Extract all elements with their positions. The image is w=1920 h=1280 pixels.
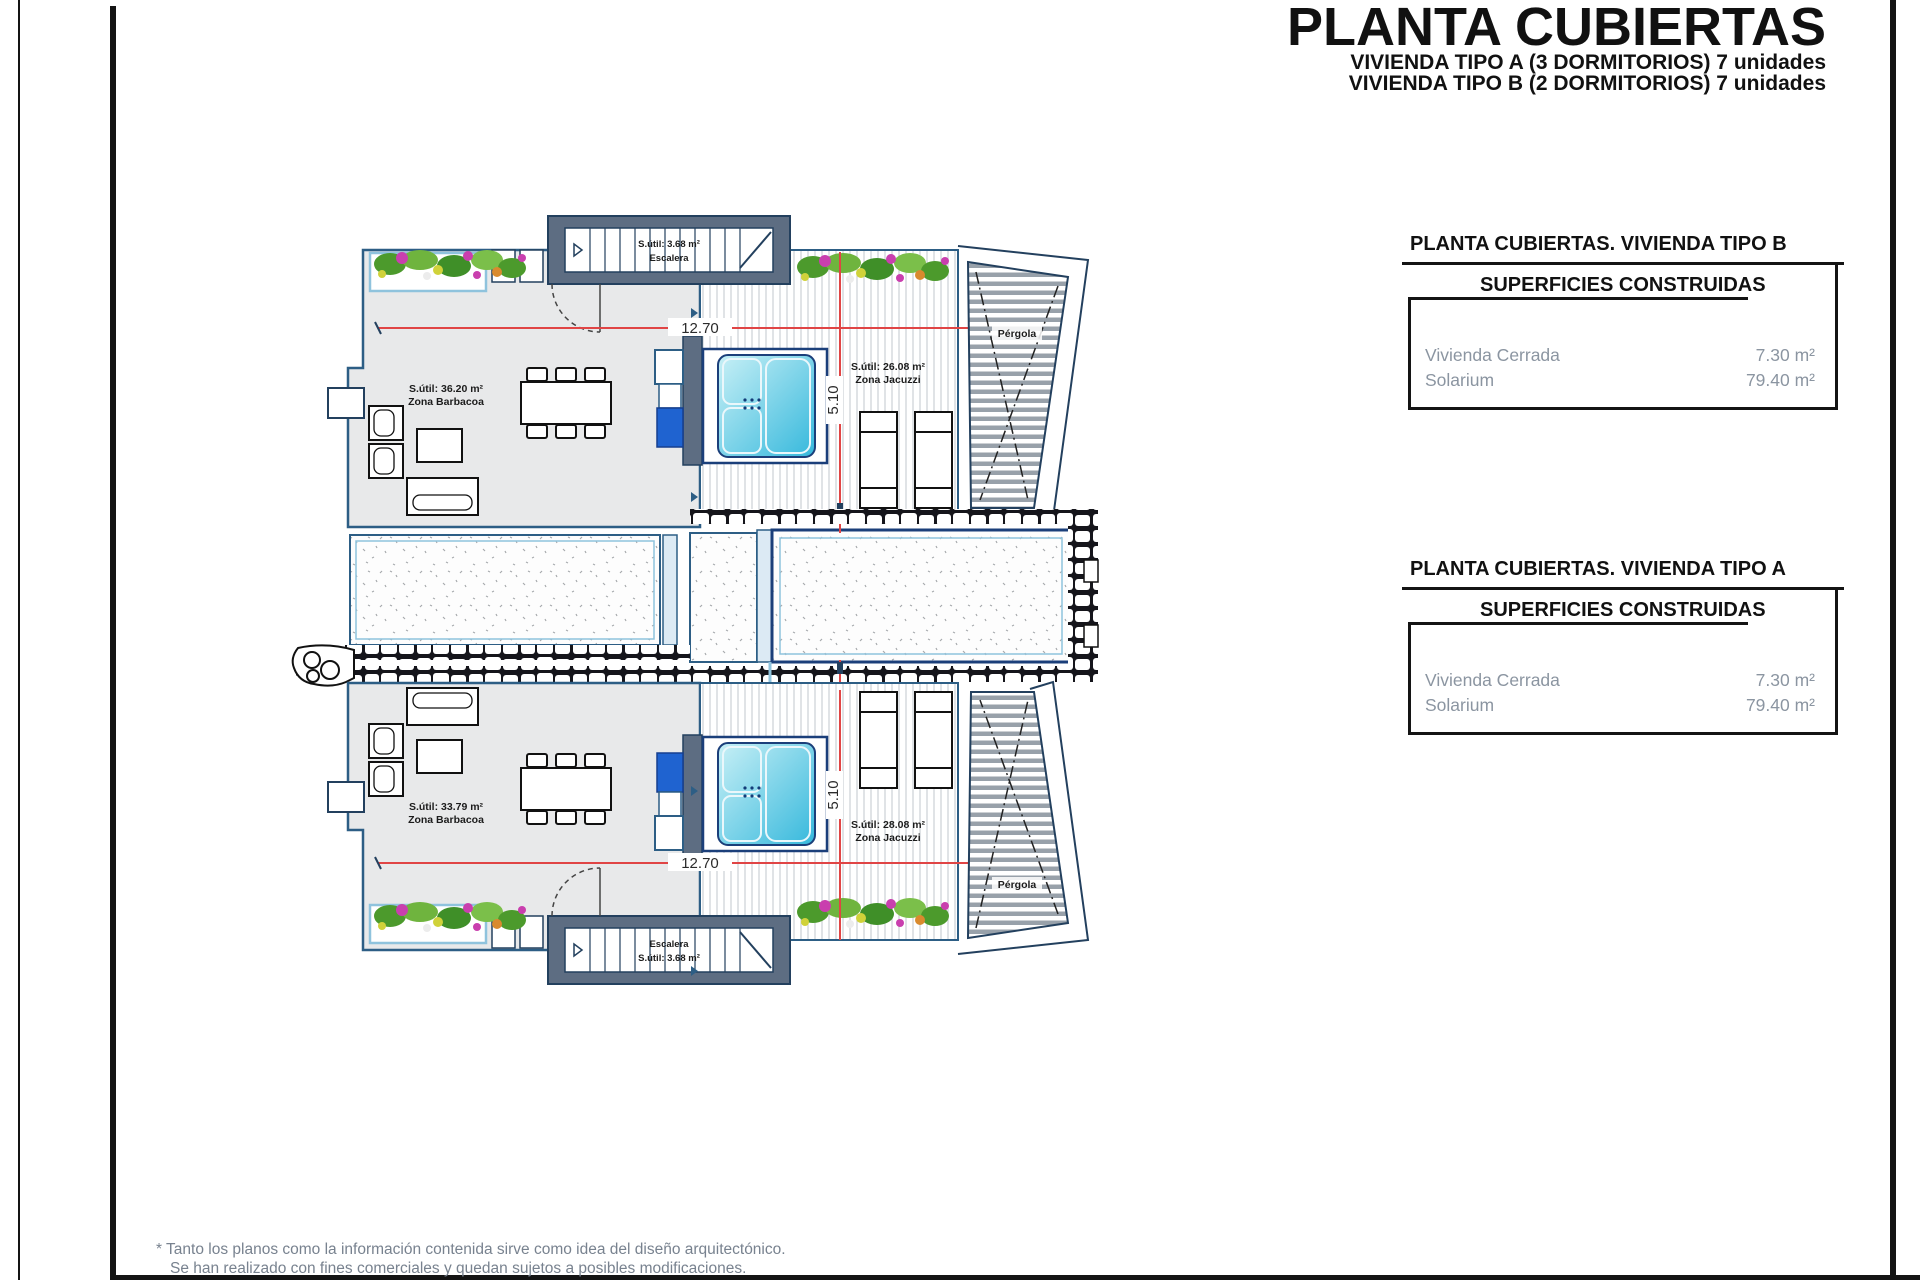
row-label: Vivienda Cerrada bbox=[1425, 670, 1560, 691]
dining-set bbox=[521, 754, 611, 824]
pergola-top: Pérgola bbox=[958, 246, 1088, 518]
surfaces-table-tipo-b: PLANTA CUBIERTAS. VIVIENDA TIPO B SUPERF… bbox=[1408, 233, 1838, 410]
stair-name-label: Escalera bbox=[649, 253, 689, 264]
core-wall bbox=[683, 735, 702, 864]
pergola-bottom: Pérgola bbox=[958, 682, 1088, 954]
wall-bump bbox=[328, 782, 364, 812]
zone-name-label: Zona Jacuzzi bbox=[855, 832, 920, 844]
stair-area-label: S.útil: 3.68 m² bbox=[638, 953, 700, 964]
stair-name-label: Escalera bbox=[649, 939, 689, 950]
row-label: Vivienda Cerrada bbox=[1425, 345, 1560, 366]
row-value: 7.30 m² bbox=[1756, 345, 1815, 366]
stair-area-label: S.útil: 3.68 m² bbox=[638, 239, 700, 250]
row-value: 79.40 m² bbox=[1746, 695, 1815, 716]
stone-pile bbox=[293, 645, 354, 685]
row-label: Solarium bbox=[1425, 695, 1494, 716]
middle-roof-strip bbox=[293, 509, 1098, 700]
wall-bump bbox=[328, 388, 364, 418]
disclaimer-line-2: Se han realizado con fines comerciales y… bbox=[170, 1259, 786, 1278]
disclaimer-note: * Tanto los planos como la información c… bbox=[156, 1240, 786, 1278]
depth-dimension: 5.10 bbox=[825, 780, 842, 809]
stone-wall bbox=[296, 645, 690, 660]
disclaimer-line-1: * Tanto los planos como la información c… bbox=[156, 1240, 786, 1259]
core-wall bbox=[683, 336, 702, 465]
bbq-fixture bbox=[655, 350, 683, 384]
dining-set bbox=[521, 368, 611, 438]
title-block: PLANTA CUBIERTAS VIVIENDA TIPO A (3 DORM… bbox=[1287, 2, 1826, 94]
pergola-label: Pérgola bbox=[998, 328, 1037, 340]
pergola-label: Pérgola bbox=[998, 879, 1037, 891]
bbq-fixture bbox=[659, 384, 681, 408]
zone-area-label: S.útil: 36.20 m² bbox=[409, 383, 484, 395]
depth-dimension: 5.10 bbox=[825, 385, 842, 414]
stone-wall bbox=[690, 509, 1098, 524]
row-value: 7.30 m² bbox=[1756, 670, 1815, 691]
table-title: PLANTA CUBIERTAS. VIVIENDA TIPO B bbox=[1410, 233, 1787, 256]
zone-name-label: Zona Barbacoa bbox=[408, 814, 484, 826]
row-value: 79.40 m² bbox=[1746, 370, 1815, 391]
roof-slab bbox=[772, 530, 1070, 662]
subtitle-tipo-a: VIVIENDA TIPO A (3 DORMITORIOS) 7 unidad… bbox=[1287, 52, 1826, 73]
frame-thick-right bbox=[1890, 0, 1896, 1280]
unit-a: Escalera S.útil: 3.68 m² bbox=[328, 682, 1088, 984]
roof-divider bbox=[757, 530, 772, 662]
bbq-fixture bbox=[655, 816, 683, 850]
jacuzzi-top bbox=[703, 349, 827, 463]
width-dimension: 12.70 bbox=[681, 320, 719, 337]
jacuzzi-bottom bbox=[703, 737, 827, 851]
table-title: PLANTA CUBIERTAS. VIVIENDA TIPO A bbox=[1410, 558, 1786, 581]
roof-slab bbox=[690, 533, 757, 662]
page-title: PLANTA CUBIERTAS bbox=[1287, 2, 1826, 52]
zone-area-label: S.útil: 33.79 m² bbox=[409, 801, 484, 813]
roof-slab bbox=[350, 535, 660, 645]
bbq-fixture bbox=[659, 792, 681, 816]
table-subtitle: SUPERFICIES CONSTRUIDAS bbox=[1480, 274, 1766, 297]
surfaces-table-tipo-a: PLANTA CUBIERTAS. VIVIENDA TIPO A SUPERF… bbox=[1408, 558, 1838, 735]
frame-thick-left bbox=[110, 6, 116, 1280]
roof-divider bbox=[663, 535, 677, 645]
stone-wall bbox=[296, 666, 1098, 682]
table-subtitle: SUPERFICIES CONSTRUIDAS bbox=[1480, 599, 1766, 622]
zone-name-label: Zona Barbacoa bbox=[408, 396, 484, 408]
width-dimension: 12.70 bbox=[681, 855, 719, 872]
sink-fixture bbox=[657, 753, 683, 792]
sink-fixture bbox=[657, 408, 683, 447]
row-label: Solarium bbox=[1425, 370, 1494, 391]
zone-name-label: Zona Jacuzzi bbox=[855, 374, 920, 386]
subtitle-tipo-b: VIVIENDA TIPO B (2 DORMITORIOS) 7 unidad… bbox=[1287, 73, 1826, 94]
zone-area-label: S.útil: 28.08 m² bbox=[851, 819, 926, 831]
unit-b: S.útil: 3.68 m² Escalera bbox=[328, 216, 1088, 527]
zone-area-label: S.útil: 26.08 m² bbox=[851, 361, 926, 373]
frame-thin-left bbox=[18, 0, 20, 1280]
